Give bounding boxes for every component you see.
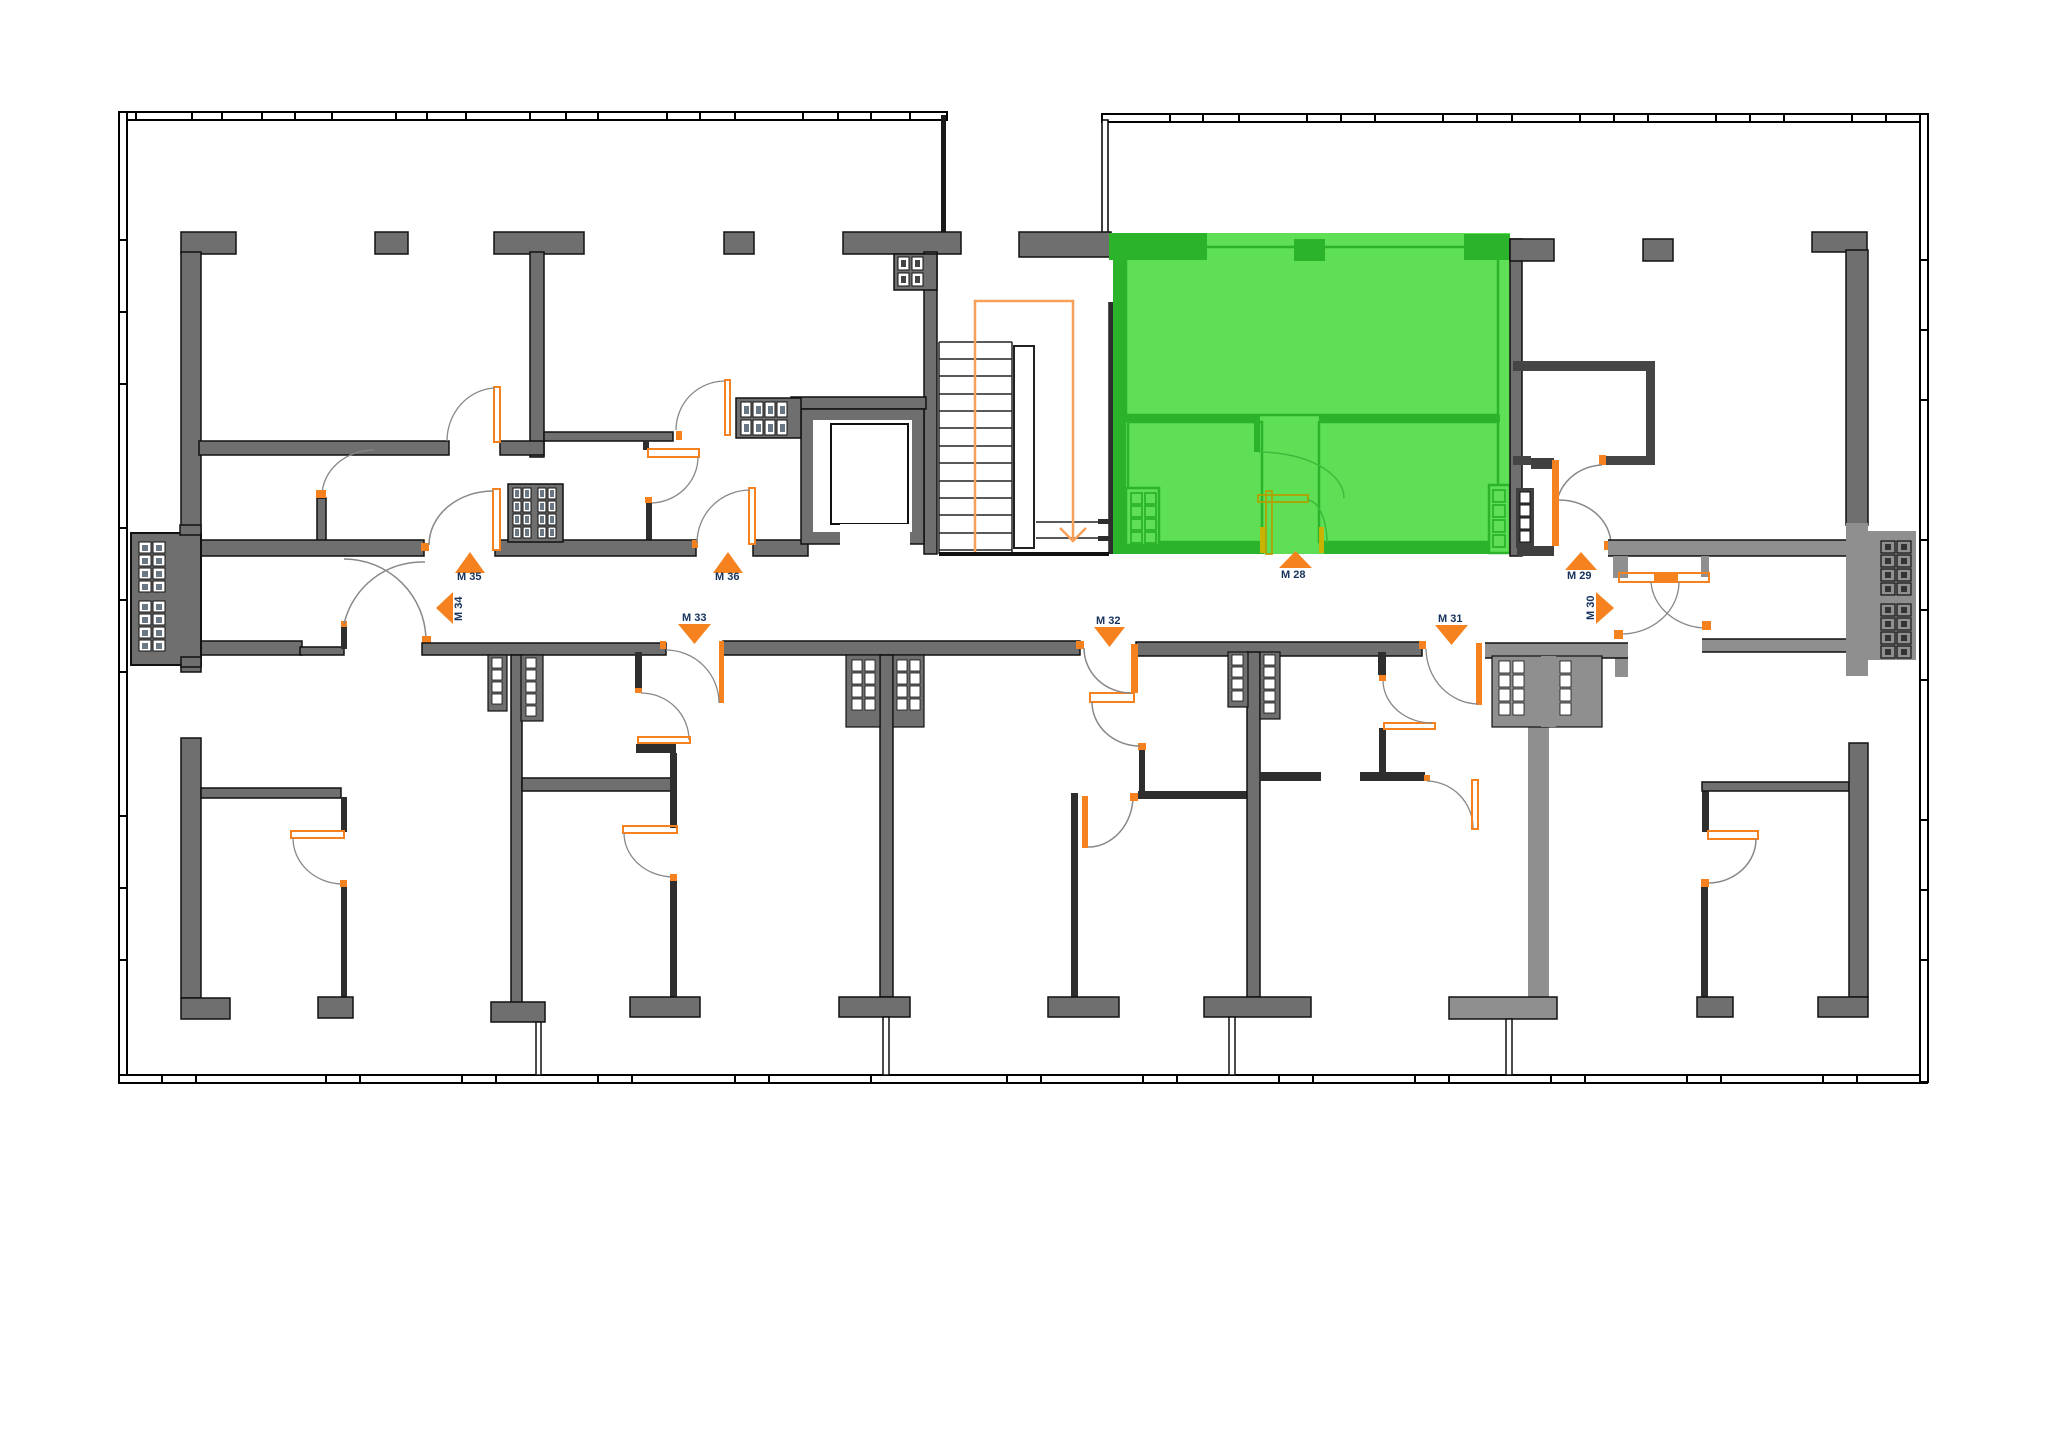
svg-text:M 29: M 29: [1567, 570, 1591, 582]
svg-text:M 32: M 32: [1096, 615, 1120, 627]
svg-text:M 28: M 28: [1281, 569, 1305, 581]
svg-text:M 33: M 33: [682, 612, 706, 624]
svg-text:M 34: M 34: [453, 596, 465, 621]
svg-text:M 31: M 31: [1438, 613, 1462, 625]
svg-text:M 35: M 35: [457, 571, 481, 583]
svg-text:M 36: M 36: [715, 571, 739, 583]
svg-text:M 30: M 30: [1585, 596, 1597, 620]
